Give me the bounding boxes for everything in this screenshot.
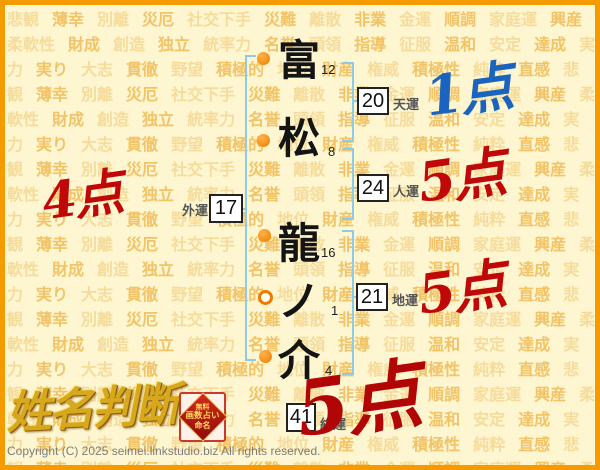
jinun-score: 5点 xyxy=(415,144,507,209)
chiun-bracket-line xyxy=(352,230,354,375)
gaiun-bracket-top-serif xyxy=(245,55,256,57)
char-bullet-icon xyxy=(257,134,270,147)
chiun-bracket-top-serif xyxy=(342,230,354,232)
jinun-bracket-top-serif xyxy=(342,148,354,150)
tenun-value-box: 20 xyxy=(357,87,389,115)
chiun-score: 5点 xyxy=(415,256,507,321)
soun-score: 5点 xyxy=(291,356,423,448)
char-bullet-hollow-icon xyxy=(258,290,273,305)
badge-line2: 画数占い xyxy=(185,411,219,421)
stroke-count-2: 8 xyxy=(328,144,335,159)
seimei-result-image: 悲観薄幸別離災厄社交下手災難離散非業金運順調家庭運興産柔軟性財成創造独立統率力名… xyxy=(0,0,600,470)
kazoe-uranai-badge: 無料 画数占い 命名 xyxy=(179,392,226,442)
name-char-2: 松 xyxy=(276,118,322,160)
badge-line3: 命名 xyxy=(195,421,211,431)
gaiun-bracket-bottom-serif xyxy=(245,359,256,361)
tenun-bracket-line xyxy=(352,62,354,142)
tenun-score: 1点 xyxy=(422,58,514,123)
gaiun-score: 4点 xyxy=(39,167,124,227)
copyright-text: Copyright (C) 2025 seimei.linkstudio.biz… xyxy=(7,444,320,458)
gaiun-value-box: 17 xyxy=(209,194,243,223)
stroke-count-3: 16 xyxy=(321,245,335,260)
jinun-label: 人運 xyxy=(393,181,419,200)
jinun-value-box: 24 xyxy=(357,174,389,202)
jinun-bracket-line xyxy=(352,148,354,220)
name-char-4: ノ xyxy=(276,281,322,323)
stroke-count-1: 12 xyxy=(321,62,335,77)
name-char-1: 富 xyxy=(276,40,322,82)
char-bullet-icon xyxy=(259,350,272,363)
jinun-bracket-bottom-serif xyxy=(342,218,354,220)
site-logo: 姓名判断 xyxy=(5,382,179,436)
stroke-count-4: 1 xyxy=(331,303,338,318)
tenun-bracket-bottom-serif xyxy=(342,140,354,142)
tenun-bracket-top-serif xyxy=(342,62,354,64)
chiun-value-box: 21 xyxy=(356,283,388,311)
char-bullet-icon xyxy=(257,52,270,65)
gaiun-label: 外運 xyxy=(182,200,208,219)
name-char-3: 龍 xyxy=(276,223,322,265)
chiun-label: 地運 xyxy=(392,290,418,309)
tenun-label: 天運 xyxy=(393,94,419,113)
char-bullet-icon xyxy=(258,229,271,242)
